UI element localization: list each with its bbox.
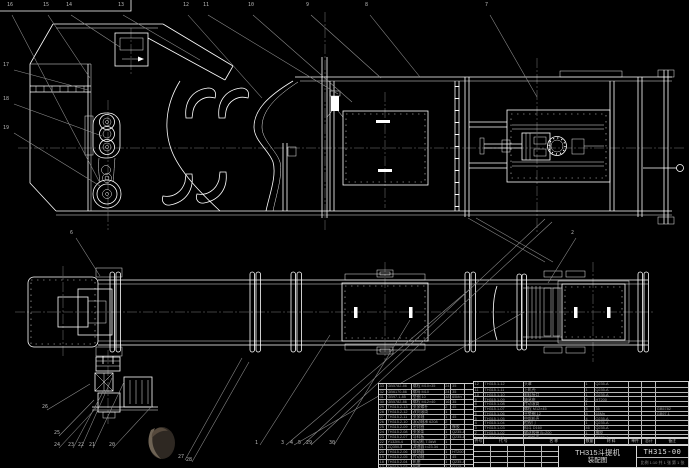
bom-cell: TH315.1-08	[484, 402, 524, 406]
bom-row: 33GB5782-86螺栓 M10×352435	[379, 384, 474, 389]
bom-cell: 3	[474, 426, 484, 430]
bom-cell	[642, 407, 656, 411]
bom-row: 31GB97.1-85垫圈 104865Mn	[379, 394, 474, 399]
bom-row: 20TH315.2-06联轴器1HT200	[379, 449, 474, 454]
bom-cell: 10	[474, 393, 484, 397]
bom-row: 8TH315.1-08传动滚筒1	[474, 401, 688, 406]
bom-cell: 电动机 7.5kW	[412, 440, 444, 444]
bom-cell: 1	[585, 393, 595, 397]
bom-cell: 张紧架	[412, 430, 444, 434]
bom-cell: Q235-A	[595, 416, 629, 420]
part-balloon: 24	[54, 443, 60, 448]
bom-cell	[629, 402, 643, 406]
bom-cell: Y132M-4	[387, 440, 412, 444]
bom-cell: 检视门	[524, 421, 585, 425]
part-balloon: 18	[3, 97, 9, 102]
signature-cell	[491, 463, 508, 468]
bom-cell: 联轴器	[412, 450, 444, 454]
part-balloon: 5	[298, 441, 301, 446]
part-balloon: 20	[109, 443, 115, 448]
bom-cell: 33	[379, 384, 387, 389]
bom-cell: 6	[474, 412, 484, 416]
title-footer: 比例 1:10 共 1 张 第 1 张	[637, 457, 688, 467]
bom-row: 19TH315.2-05传动轴145	[379, 454, 474, 459]
bom-cell: 18	[379, 460, 387, 464]
bom-cell: 上机壳	[524, 388, 585, 392]
bom-cell	[656, 393, 688, 397]
bom-cell	[642, 393, 656, 397]
part-balloon: 10	[248, 3, 254, 8]
bom-cell	[451, 410, 465, 414]
signature-row	[474, 462, 558, 468]
bom-cell: 1	[445, 455, 452, 459]
bom-cell: 1	[445, 460, 452, 464]
bom-cell: 输送胶带 B=200	[524, 431, 585, 435]
bom-row: 25TH315.2-09密封圈2橡胶	[379, 424, 474, 429]
bom-row: 22Y132M-4电动机 7.5kW1	[379, 439, 474, 444]
bom-cell	[656, 426, 688, 430]
bom-cell: 中部机壳	[524, 416, 585, 420]
bom-cell: 1	[585, 431, 595, 435]
bom-row: 12TH315.1-12头罩1Q235-A	[474, 382, 688, 387]
part-balloon: 29	[306, 441, 312, 446]
bom-cell	[629, 397, 643, 401]
bom-cell: 46	[585, 426, 595, 430]
bom-cell: 25	[379, 425, 387, 429]
part-balloon: 27	[178, 455, 184, 460]
bom-cell: 32	[379, 390, 387, 394]
bom-cell	[642, 382, 656, 387]
drive-sprockets	[93, 115, 121, 209]
bom-cell: 1	[445, 410, 452, 414]
bom-cell: TH315.1-05	[484, 416, 524, 420]
bom-cell: TH315.1-02	[484, 431, 524, 435]
middle-casing	[56, 77, 672, 215]
bom-cell: 减速器 i=23.34	[412, 445, 444, 449]
bom-cell: 2	[445, 435, 452, 439]
bom-cell: GB5782-86	[387, 400, 412, 404]
grease-fitting	[327, 91, 343, 117]
bom-cell: TH315.1-07	[484, 407, 524, 411]
bom-cell: 35	[451, 390, 465, 394]
bom-cell: GB97.1-85	[387, 395, 412, 399]
bom-row: 23TH315.2-07导料板2Q235-A	[379, 434, 474, 439]
bom-cell: 1	[585, 402, 595, 406]
bom-cell	[629, 421, 643, 425]
title-main: TH315斗提机 装配图	[559, 446, 637, 467]
bom-cell: TH315.1-11	[484, 388, 524, 392]
part-balloon: 13	[118, 3, 124, 8]
bom-cell: GB6170-86	[387, 390, 412, 394]
bom-cell: Q235-A	[595, 388, 629, 392]
part-balloon: 15	[43, 3, 49, 8]
bom-cell: 1	[585, 388, 595, 392]
bom-cell	[629, 388, 643, 392]
elevation-view	[30, 24, 684, 262]
bom-cell: 35	[451, 384, 465, 389]
bom-cell	[451, 445, 465, 449]
bom-cell: 5	[474, 416, 484, 420]
bom-cell: GB97.1	[656, 412, 688, 416]
bom-cell: GB5782-86	[387, 384, 412, 389]
signature-cell	[508, 463, 525, 468]
part-balloon: 2	[571, 231, 574, 236]
bom-row: 11TH315.1-11上机壳1Q235-A	[474, 387, 688, 392]
bom-cell: TH315.2-11	[387, 415, 412, 419]
bom-cell: 橡胶	[595, 431, 629, 435]
bom-cell: 1	[445, 440, 452, 444]
bom-cell	[656, 382, 688, 387]
bom-row: 30GB5782-86螺栓 M12×401635	[379, 399, 474, 404]
parts-list-header: 件号代 号名 称数量材 料单件总计备注	[473, 438, 689, 445]
bom-cell	[656, 402, 688, 406]
bom-cell: 27	[379, 415, 387, 419]
part-balloon: 17	[3, 63, 9, 68]
parts-list-left: 33GB5782-86螺栓 M10×35243532GB6170-86螺母 M1…	[378, 383, 475, 468]
bom-cell: 21	[379, 445, 387, 449]
bom-cell: TH315.1-03	[484, 426, 524, 430]
bom-cell: Q235-A	[451, 460, 465, 464]
part-balloon: 21	[89, 443, 95, 448]
bom-cell: 料斗 D160	[524, 426, 585, 430]
bom-row: 17TH315.2-03护罩1Q215	[379, 464, 474, 468]
bom-cell: 48	[445, 395, 452, 399]
bom-cell	[595, 402, 629, 406]
bom-cell: 20	[379, 450, 387, 454]
bom-row: 7TH315.1-07螺栓 M12×45835GB5782	[474, 406, 688, 411]
bom-cell	[642, 402, 656, 406]
bom-cell: 密封圈	[412, 425, 444, 429]
bom-cell	[642, 397, 656, 401]
bom-cell: TH315.1-09	[484, 397, 524, 401]
bom-cell: 29	[379, 405, 387, 409]
bom-cell: TH315.2-08	[387, 430, 412, 434]
bom-row: 10TH315.1-10卸料接口1Q235-A	[474, 392, 688, 397]
part-balloon: 8	[365, 3, 368, 8]
bom-cell: 4	[474, 421, 484, 425]
part-balloon: 1	[255, 441, 258, 446]
bom-cell: 23	[379, 435, 387, 439]
part-balloon: 26	[42, 405, 48, 410]
bom-row: 32GB6170-86螺母 M102435	[379, 389, 474, 394]
bom-cell	[629, 407, 643, 411]
bom-cell: 滚动轴承 6208	[412, 420, 444, 424]
bom-cell	[656, 421, 688, 425]
bom-cell	[451, 420, 465, 424]
product-name: TH315斗提机	[575, 448, 620, 457]
bom-cell	[642, 426, 656, 430]
bom-cell: 1	[445, 450, 452, 454]
bom-cell: 45	[451, 455, 465, 459]
part-balloon: 16	[7, 3, 13, 8]
title-block: TH315斗提机 装配图 TH315-00 比例 1:10 共 1 张 第 1 …	[473, 445, 689, 468]
bom-cell: TH315.2-10	[387, 420, 412, 424]
bom-cell: TH315.2-12	[387, 410, 412, 414]
part-balloon: 12	[183, 3, 189, 8]
bom-cell: 螺栓 M12×45	[524, 407, 585, 411]
bom-cell: Q235-A	[451, 430, 465, 434]
bom-cell: 24	[445, 384, 452, 389]
bom-cell: 19	[379, 455, 387, 459]
part-balloon: 7	[485, 3, 488, 8]
centerlines	[15, 12, 685, 424]
bom-cell: 45	[451, 415, 465, 419]
bom-cell: 24	[445, 390, 452, 394]
bom-row: 6TH315.1-06平垫圈 12865MnGB97.1	[474, 411, 688, 416]
bom-cell: Q235-A	[451, 435, 465, 439]
bom-row: 18TH315.2-04机座1Q235-A	[379, 459, 474, 464]
elevator-buckets	[162, 88, 248, 205]
bom-cell: TH315.2-04	[387, 460, 412, 464]
signature-cell	[542, 463, 558, 468]
bom-cell: 35	[451, 400, 465, 404]
bom-cell: 11	[474, 388, 484, 392]
signature-cell	[525, 463, 542, 468]
title-number-area: TH315-00 比例 1:10 共 1 张 第 1 张	[637, 446, 688, 467]
bom-cell: 65Mn	[595, 412, 629, 416]
bom-cell: 35	[595, 407, 629, 411]
bom-cell: 1	[445, 430, 452, 434]
bom-row: 29TH315.2-13张紧螺杆245	[379, 404, 474, 409]
bom-row: 3TH315.1-03料斗 D16046Q235-A	[474, 425, 688, 430]
bom-cell	[629, 416, 643, 420]
bom-cell: 1	[445, 445, 452, 449]
part-balloon: 14	[66, 3, 72, 8]
bom-cell: 垫圈 10	[412, 395, 444, 399]
part-balloon: 30	[329, 441, 335, 446]
bom-row: 27TH315.2-11张紧轴145	[379, 414, 474, 419]
bom-cell: Q235-A	[595, 393, 629, 397]
bom-cell: 螺栓 M12×40	[412, 400, 444, 404]
bom-cell: 传动滚筒	[524, 402, 585, 406]
ink-blot	[148, 427, 175, 459]
bom-cell: 导料板	[412, 435, 444, 439]
bom-cell: 轴承座	[524, 397, 585, 401]
bom-cell: Q235-A	[595, 426, 629, 430]
part-balloon: 19	[3, 126, 9, 131]
bom-cell: 1	[445, 415, 452, 419]
bom-cell: 改向滚筒	[412, 410, 444, 414]
part-balloon: 3	[281, 441, 284, 446]
part-balloon: 22	[78, 443, 84, 448]
bom-cell: 2	[445, 425, 452, 429]
cad-drawing-sheet: 1615141312111098717181962262524232221202…	[0, 0, 689, 468]
bom-cell: 2	[445, 405, 452, 409]
bom-cell: 张紧轴	[412, 415, 444, 419]
bom-cell: 张紧螺杆	[412, 405, 444, 409]
bom-row: 9TH315.1-09轴承座2HT200	[474, 396, 688, 401]
bom-cell: 8	[474, 402, 484, 406]
bom-cell: 螺母 M10	[412, 390, 444, 394]
bom-cell: 机座	[412, 460, 444, 464]
bom-cell	[629, 426, 643, 430]
takeup-carriage	[480, 133, 604, 160]
bom-cell	[656, 416, 688, 420]
bom-cell: TH315.1-04	[484, 421, 524, 425]
bom-cell: 8	[585, 412, 595, 416]
bom-cell: 头罩	[524, 382, 585, 387]
bom-cell: TH315.2-06	[387, 450, 412, 454]
parts-list-right: 12TH315.1-12头罩1Q235-A11TH315.1-11上机壳1Q23…	[473, 381, 689, 438]
bom-cell: 8	[585, 407, 595, 411]
bom-cell	[629, 393, 643, 397]
bom-cell: HT200	[595, 397, 629, 401]
bom-cell: TH315.2-07	[387, 435, 412, 439]
bom-row: 26TH315.2-10滚动轴承 62082	[379, 419, 474, 424]
bom-cell: TH315.1-06	[484, 412, 524, 416]
bom-row: 21ZQ350-Ⅱ减速器 i=23.341	[379, 444, 474, 449]
bom-cell: TH315.2-13	[387, 405, 412, 409]
bom-cell	[642, 416, 656, 420]
bom-cell: 45	[451, 405, 465, 409]
part-balloon: 23	[68, 443, 74, 448]
signature-grid	[474, 446, 559, 467]
bom-cell: 2	[445, 420, 452, 424]
bom-cell: ZQ350-Ⅱ	[387, 445, 412, 449]
bom-cell: TH315.2-09	[387, 425, 412, 429]
part-balloon: 11	[203, 3, 209, 8]
bom-cell: 螺栓 M10×35	[412, 384, 444, 389]
bom-row: 24TH315.2-08张紧架1Q235-A	[379, 429, 474, 434]
bom-row: 2TH315.1-02输送胶带 B=2001橡胶	[474, 430, 688, 435]
drive-unit-plan	[92, 356, 158, 418]
drawing-number: TH315-00	[637, 446, 688, 457]
takeup-screw	[643, 165, 684, 172]
bom-cell: 1	[585, 421, 595, 425]
bom-cell: 31	[379, 395, 387, 399]
bom-cell: 26	[379, 420, 387, 424]
bom-cell: 卸料接口	[524, 393, 585, 397]
bom-cell: 传动轴	[412, 455, 444, 459]
bom-row: 28TH315.2-12改向滚筒1	[379, 409, 474, 414]
bom-cell: 橡胶	[451, 425, 465, 429]
bom-cell: 24	[379, 430, 387, 434]
bom-cell: TH315.1-12	[484, 382, 524, 387]
part-balloon: 4	[290, 441, 293, 446]
bom-cell	[451, 440, 465, 444]
bom-cell: 12	[474, 382, 484, 387]
bom-cell: 2	[585, 397, 595, 401]
bom-cell	[629, 431, 643, 435]
bom-cell	[656, 388, 688, 392]
bom-cell: 2	[474, 431, 484, 435]
bom-cell	[642, 388, 656, 392]
bom-cell: 4	[585, 416, 595, 420]
bom-cell: 65Mn	[451, 395, 465, 399]
bom-cell	[629, 382, 643, 387]
bom-cell	[656, 431, 688, 435]
bom-cell: Q235-A	[595, 421, 629, 425]
bom-cell	[642, 421, 656, 425]
bom-cell	[642, 431, 656, 435]
bom-cell: 16	[445, 400, 452, 404]
bom-cell: TH315.1-10	[484, 393, 524, 397]
signature-cell	[474, 463, 491, 468]
bom-cell: 7	[474, 407, 484, 411]
bom-row: 5TH315.1-05中部机壳4Q235-A	[474, 415, 688, 420]
bom-cell	[642, 412, 656, 416]
bom-cell	[629, 412, 643, 416]
bom-cell	[656, 397, 688, 401]
part-balloon: 28	[186, 458, 192, 463]
bom-cell: GB5782	[656, 407, 688, 411]
bom-cell: 28	[379, 410, 387, 414]
bom-cell: TH315.2-05	[387, 455, 412, 459]
part-balloon: 6	[70, 231, 73, 236]
part-balloon: 25	[54, 431, 60, 436]
bom-cell: 30	[379, 400, 387, 404]
bom-cell: 9	[474, 397, 484, 401]
part-balloon: 9	[306, 3, 309, 8]
bom-row: 4TH315.1-04检视门1Q235-A	[474, 420, 688, 425]
bom-cell: 平垫圈 12	[524, 412, 585, 416]
sheet-name: 装配图	[588, 457, 608, 465]
bom-cell: Q235-A	[595, 382, 629, 387]
bom-cell: 22	[379, 440, 387, 444]
bom-cell: 1	[585, 382, 595, 387]
bom-cell: HT200	[451, 450, 465, 454]
boot-section	[465, 70, 684, 262]
